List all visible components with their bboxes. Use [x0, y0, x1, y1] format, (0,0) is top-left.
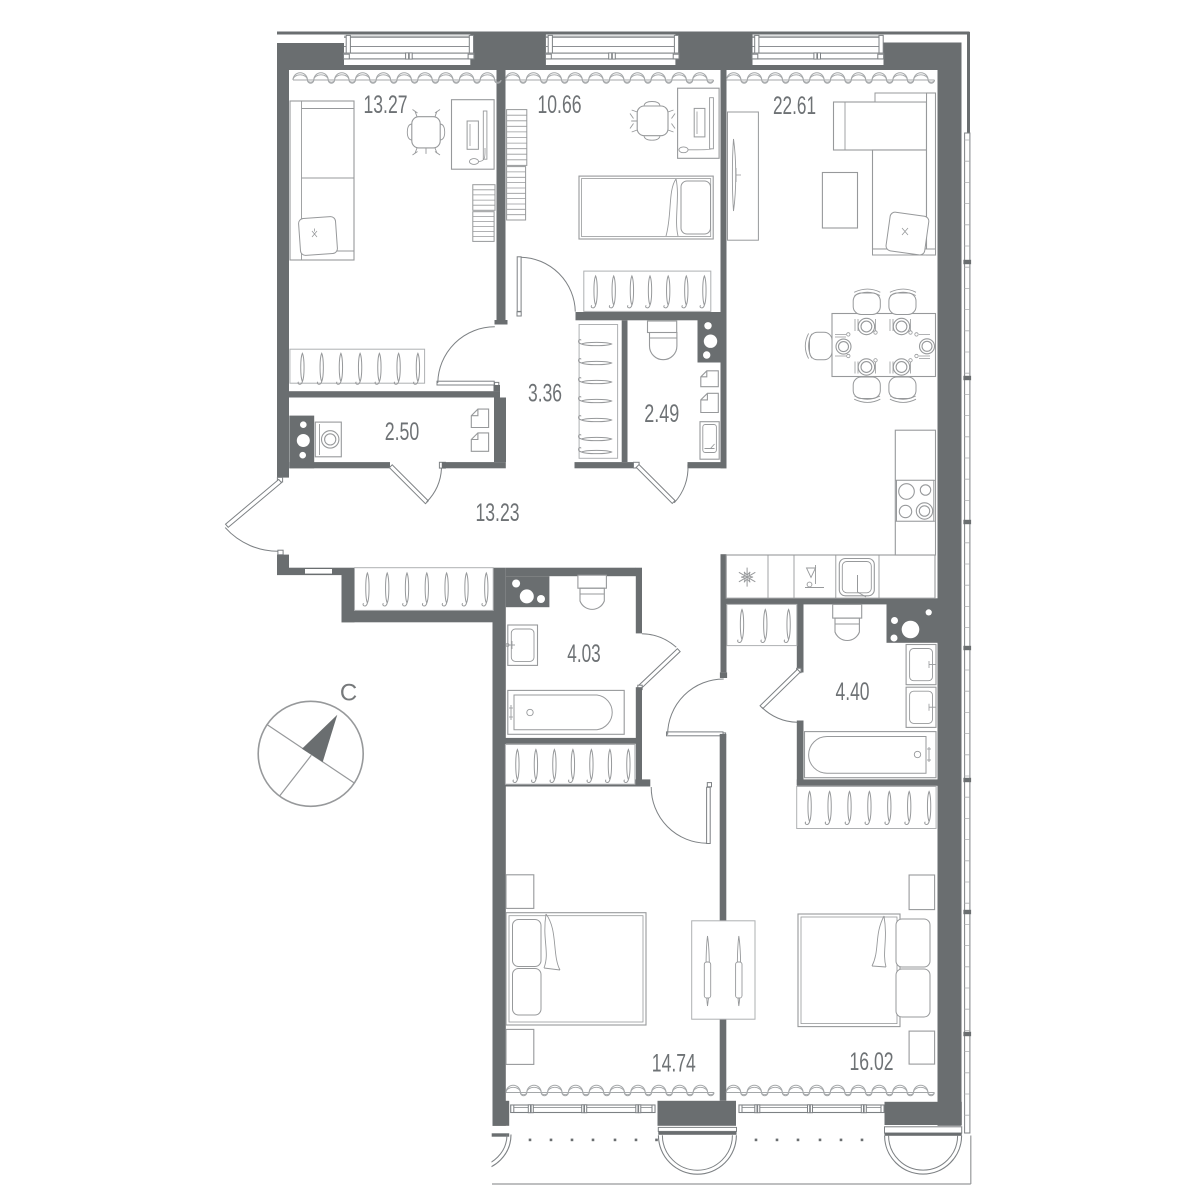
- svg-text:3.36: 3.36: [528, 381, 562, 408]
- svg-text:C: C: [340, 680, 357, 707]
- svg-text:2.50: 2.50: [385, 419, 420, 446]
- svg-text:14.74: 14.74: [652, 1051, 696, 1078]
- svg-text:2.49: 2.49: [644, 401, 679, 428]
- svg-text:13.27: 13.27: [364, 92, 408, 119]
- svg-text:13.23: 13.23: [476, 500, 520, 527]
- svg-text:4.40: 4.40: [836, 679, 870, 706]
- svg-text:10.66: 10.66: [538, 92, 582, 119]
- svg-text:22.61: 22.61: [773, 93, 816, 120]
- svg-text:4.03: 4.03: [567, 641, 601, 668]
- svg-text:16.02: 16.02: [850, 1049, 894, 1076]
